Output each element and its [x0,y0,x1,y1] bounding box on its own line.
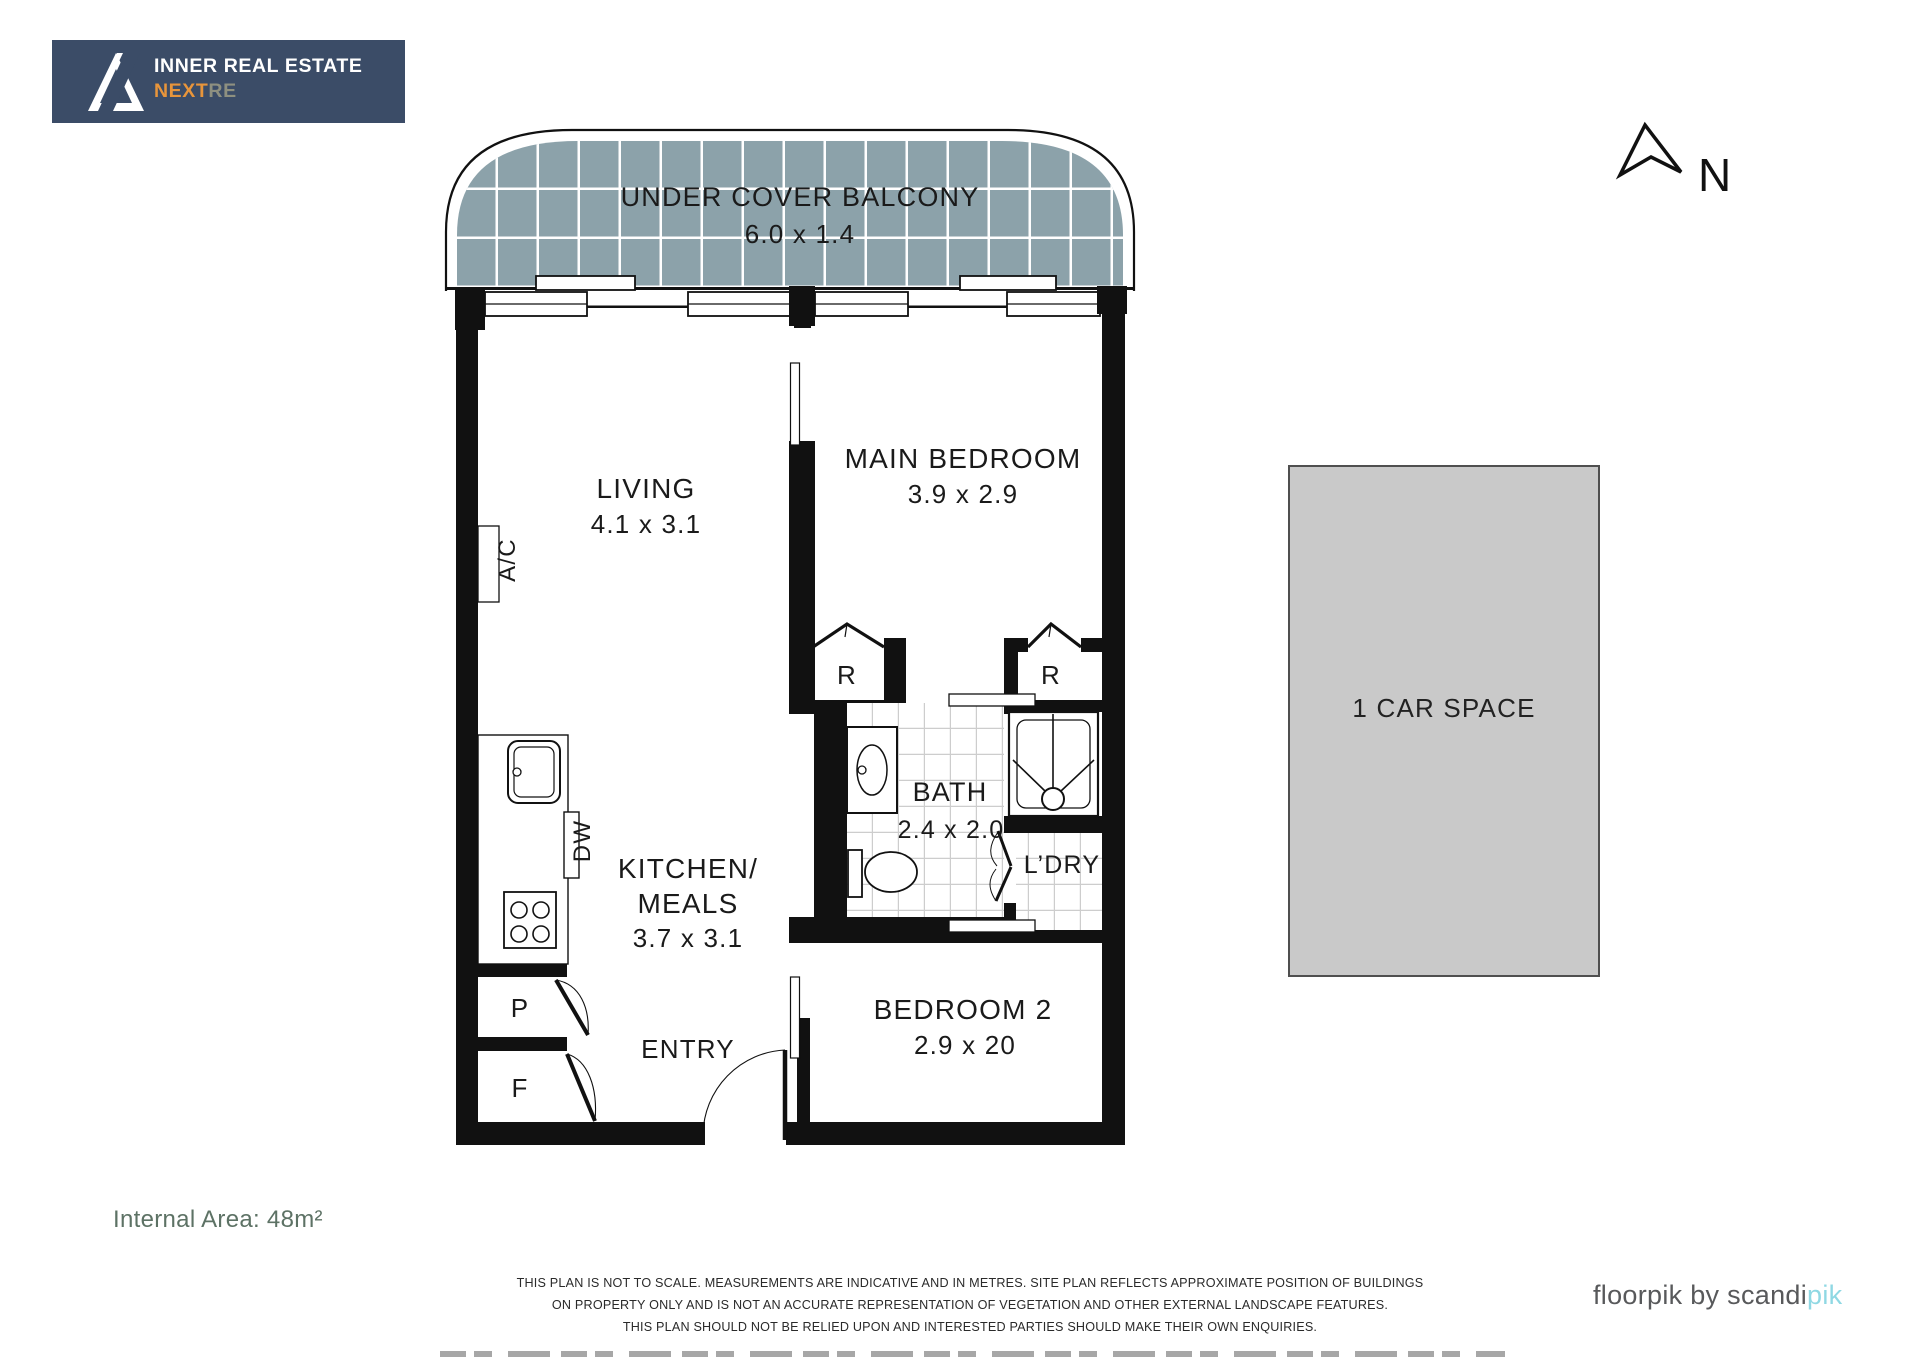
disclaimer: THIS PLAN IS NOT TO SCALE. MEASUREMENTS … [378,1272,1561,1338]
fridge-label: F [511,1073,528,1103]
living-label: LIVING [596,473,695,504]
window [960,276,1056,290]
wall-living-bedroom [789,441,815,708]
car-space: 1 CAR SPACE [1288,465,1600,977]
wall [789,638,813,652]
balcony-deck-grid [457,141,1123,289]
agency-subname-light: RE [208,80,236,102]
kitchen-label-2: MEALS [638,888,739,919]
bath-dims: 2.4 x 2.0 [898,816,1005,844]
shower-drain [1042,788,1064,810]
internal-area-text: Internal Area: 48m² [113,1206,323,1234]
robe-right-label: R [1041,660,1061,690]
toilet-bowl [865,852,917,892]
robe-bifold-door [1028,624,1081,647]
wall-bath-left [814,703,847,943]
north-arrow: N [1598,95,1798,210]
main-bedroom-label: MAIN BEDROOM [845,443,1082,474]
agency-logo-icon [88,53,144,111]
disclaimer-line-1: THIS PLAN IS NOT TO SCALE. MEASUREMENTS … [378,1272,1561,1294]
tap [858,766,866,774]
pantry-label: P [511,993,530,1023]
bedroom2-label: BEDROOM 2 [874,994,1053,1025]
wall-bottom [456,1122,705,1145]
car-space-label: 1 CAR SPACE [1290,693,1598,724]
north-arrow-icon [1620,125,1681,175]
laundry-floor-tiles [1016,833,1102,930]
wall-right [1102,288,1125,1145]
balcony-dims: 6.0 x 1.4 [745,219,856,249]
entry-label: ENTRY [641,1034,735,1064]
agency-subname: NEXTRE [154,80,237,103]
wall [1081,638,1102,652]
bedroom2-dims: 2.9 x 20 [914,1030,1016,1060]
balcony-label: UNDER COVER BALCONY [621,182,980,212]
bedroom2-sliding-door [949,920,1035,932]
wall [1004,816,1102,833]
wall [456,964,567,977]
wall [789,288,815,326]
credit-light: pik [1807,1280,1842,1310]
bath-label: BATH [913,777,988,807]
robe-left-label: R [837,660,857,690]
pantry-door [556,980,588,1035]
glass-panel [791,977,800,1058]
wall-bottom [786,1122,1125,1145]
wall-left [456,288,478,1145]
wall [456,1037,567,1051]
floorpik-credit: floorpik by scandipik [1593,1280,1842,1311]
agency-subname-bold: NEXT [154,80,208,102]
cooktop [504,892,556,948]
agency-name: INNER REAL ESTATE [154,55,362,78]
robes: R R [813,624,1081,690]
laundry-label: L’DRY [1024,851,1100,879]
balcony: UNDER COVER BALCONY 6.0 x 1.4 [446,130,1134,291]
window [536,276,635,290]
glass-panel [791,363,800,445]
toilet-cistern [848,850,862,897]
wall [884,638,906,714]
ac-label: A/C [494,538,521,582]
disclaimer-line-2: ON PROPERTY ONLY AND IS NOT AN ACCURATE … [378,1294,1561,1316]
cropped-text-artifact [440,1351,1505,1357]
credit-dark: floorpik by scandi [1593,1280,1807,1310]
wall [1004,638,1028,652]
kitchen-dims: 3.7 x 3.1 [633,923,744,953]
kitchen-label-1: KITCHEN/ [618,853,758,884]
north-label: N [1698,149,1731,201]
fridge-door [567,1054,595,1121]
main-bedroom-dims: 3.9 x 2.9 [908,479,1019,509]
robe-bifold-door [813,624,884,647]
disclaimer-line-3: THIS PLAN SHOULD NOT BE RELIED UPON AND … [378,1316,1561,1338]
bathroom: BATH 2.4 x 2.0 L’DRY [847,694,1102,932]
agency-logo-banner: INNER REAL ESTATE NEXTRE [52,40,405,123]
bath-sliding-door [949,694,1035,706]
dishwasher-label: DW [569,820,596,862]
floor-plan: UNDER COVER BALCONY 6.0 x 1.4 [430,95,1160,1165]
kitchen: DW KITCHEN/ MEALS 3.7 x 3.1 [478,735,758,964]
living-dims: 4.1 x 3.1 [591,509,702,539]
sink-tap [513,768,521,776]
